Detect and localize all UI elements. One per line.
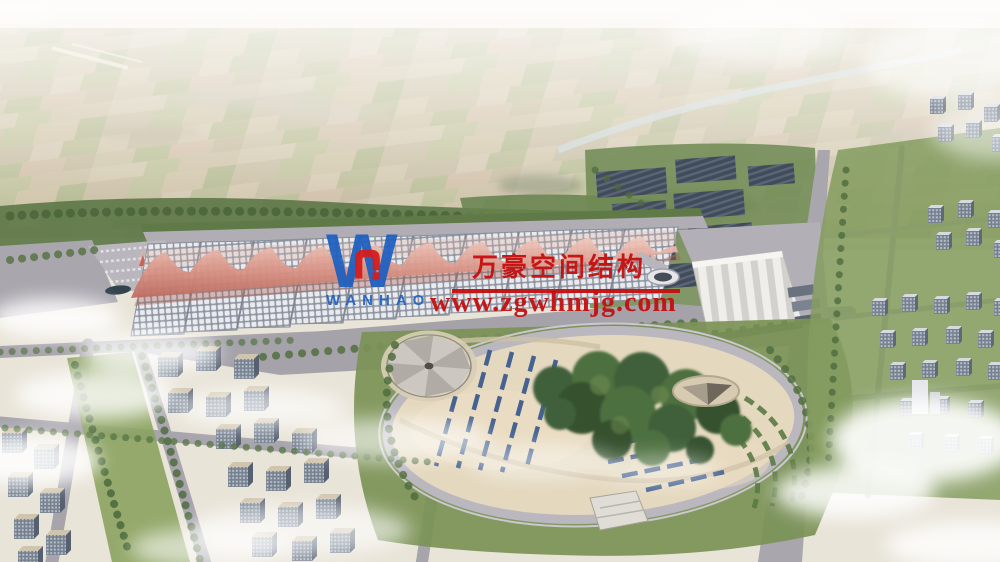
aerial-rendering: W WANHAO 万豪空间结构 www.zgwhmjg.com xyxy=(0,0,1000,562)
rendered-scene xyxy=(0,0,1000,562)
cone-pit xyxy=(673,376,739,406)
